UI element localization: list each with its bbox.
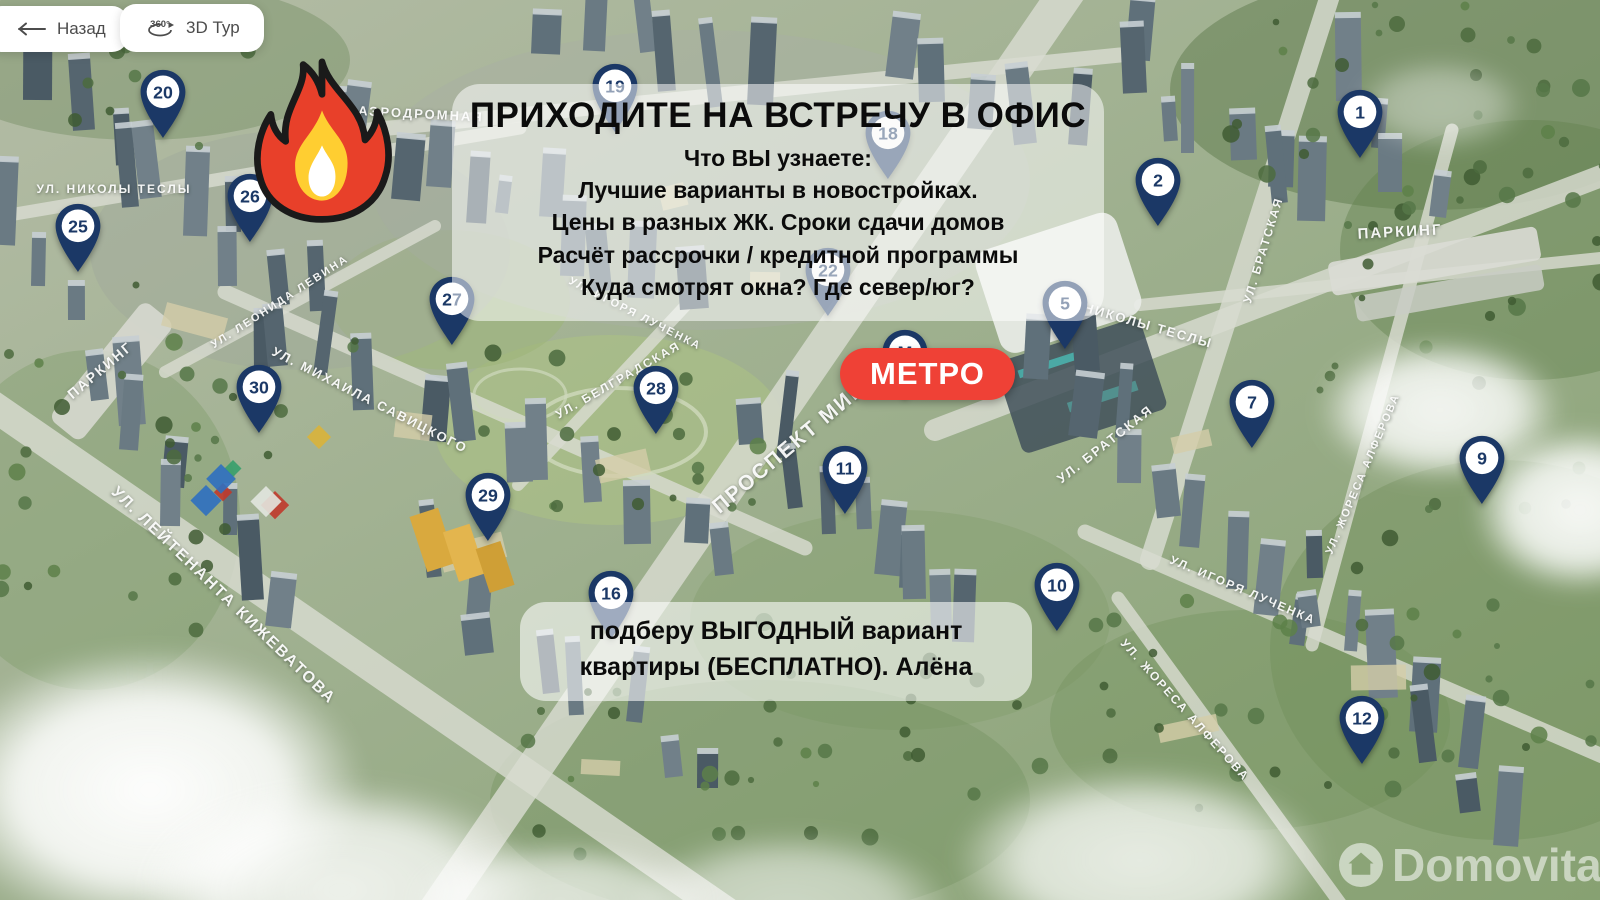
promo-lines: Что ВЫ узнаете:Лучшие варианты в новостр… [458, 142, 1098, 303]
svg-text:7: 7 [1247, 392, 1257, 412]
agent-note-line: подберу ВЫГОДНЫЙ вариант [526, 614, 1026, 650]
map-pin-7[interactable]: 7 [1224, 376, 1280, 451]
map-pin-11[interactable]: 11 [817, 442, 873, 517]
map-pin-9[interactable]: 9 [1454, 432, 1510, 507]
promo-overlay: ПРИХОДИТЕ НА ВСТРЕЧУ В ОФИС Что ВЫ узнае… [452, 84, 1104, 321]
svg-text:12: 12 [1352, 708, 1372, 728]
svg-text:10: 10 [1047, 575, 1067, 595]
real-estate-map-screenshot: УЛ. АЭРОДРОМНАЯУЛ. НИКОЛЫ ТЕСЛЫПАРКИНГУЛ… [0, 0, 1600, 900]
svg-text:25: 25 [68, 216, 88, 236]
map-pin-25[interactable]: 25 [50, 200, 106, 275]
svg-text:2: 2 [1153, 170, 1163, 190]
promo-line: Лучшие варианты в новостройках. [458, 174, 1098, 206]
agent-note-overlay: подберу ВЫГОДНЫЙ вариант квартиры (БЕСПЛ… [520, 602, 1032, 701]
promo-title: ПРИХОДИТЕ НА ВСТРЕЧУ В ОФИС [458, 96, 1098, 136]
promo-line: Куда смотрят окна? Где север/юг? [458, 271, 1098, 303]
3d-tour-label: 3D Тур [186, 18, 240, 38]
svg-text:28: 28 [646, 378, 666, 398]
map-pin-2[interactable]: 2 [1130, 154, 1186, 229]
metro-badge: МЕТРО [840, 348, 1015, 400]
promo-line: Расчёт рассрочки / кредитной программы [458, 239, 1098, 271]
3d-tour-button[interactable]: 360° 3D Тур [120, 4, 264, 52]
back-arrow-icon [16, 22, 46, 36]
map-pin-10[interactable]: 10 [1029, 559, 1085, 634]
domovita-house-icon [1338, 842, 1384, 888]
map-pin-12[interactable]: 12 [1334, 692, 1390, 767]
svg-text:29: 29 [478, 485, 498, 505]
svg-text:1: 1 [1355, 102, 1365, 122]
map-pin-29[interactable]: 29 [460, 469, 516, 544]
map-pin-1[interactable]: 1 [1332, 86, 1388, 161]
360-icon: 360° [144, 16, 176, 40]
domovita-watermark: Domovita [1338, 838, 1600, 892]
map-pin-28[interactable]: 28 [628, 362, 684, 437]
svg-text:9: 9 [1477, 448, 1487, 468]
back-button-label: Назад [57, 19, 106, 39]
fire-icon [252, 50, 392, 230]
svg-text:16: 16 [601, 583, 621, 603]
svg-text:11: 11 [836, 458, 855, 478]
street-label: УЛ. НИКОЛЫ ТЕСЛЫ [36, 182, 191, 196]
domovita-watermark-text: Domovita [1392, 838, 1600, 892]
map-pin-30[interactable]: 30 [231, 361, 287, 436]
promo-line: Цены в разных ЖК. Сроки сдачи домов [458, 206, 1098, 238]
promo-line: Что ВЫ узнаете: [458, 142, 1098, 174]
svg-text:20: 20 [153, 82, 173, 102]
agent-note-line: квартиры (БЕСПЛАТНО). Алёна [526, 650, 1026, 686]
map-pin-20[interactable]: 20 [135, 66, 191, 141]
svg-text:30: 30 [249, 377, 269, 397]
back-button[interactable]: Назад [0, 6, 128, 52]
